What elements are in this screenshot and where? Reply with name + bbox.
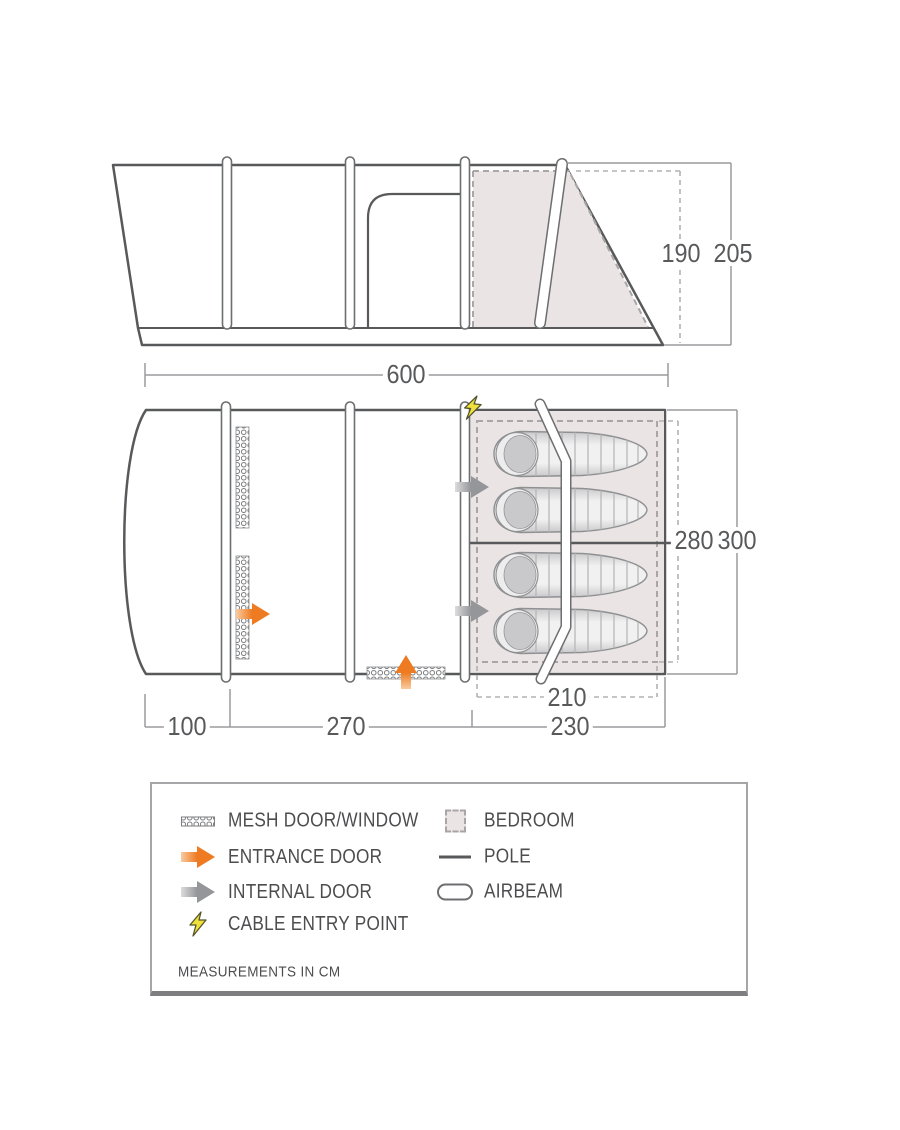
- legend-item-mesh: MESH DOOR/WINDOW: [178, 810, 449, 833]
- airbeam-side-3: [461, 157, 470, 329]
- dim-height-outer: 205: [710, 240, 756, 266]
- dim-length: 600: [383, 361, 429, 387]
- airbeam-icon: [436, 884, 474, 901]
- legend-box: MESH DOOR/WINDOW ENTRANCE DOOR INTERNAL …: [150, 782, 748, 996]
- floor-plan-view: [124, 395, 737, 727]
- legend-item-internal-door: INTERNAL DOOR: [178, 880, 396, 904]
- dim-living: 270: [323, 713, 369, 739]
- dim-bedroom-inner: 210: [544, 684, 590, 710]
- legend-label: AIRBEAM: [484, 881, 563, 904]
- legend-item-cable-entry: CABLE ENTRY POINT: [178, 910, 438, 938]
- dim-porch: 100: [164, 713, 210, 739]
- dim-bedroom-outer: 230: [547, 713, 593, 739]
- pole-icon: [436, 856, 474, 859]
- bedroom-swatch-icon: [436, 810, 474, 833]
- legend-label: INTERNAL DOOR: [228, 881, 372, 904]
- airbeam-plan-3: [461, 402, 470, 682]
- airbeam-plan-2: [346, 402, 355, 682]
- entrance-door-arrow-icon: [178, 845, 218, 869]
- legend-item-pole: POLE: [436, 846, 539, 869]
- cable-entry-point-icon: [178, 910, 218, 938]
- tent-floorplan-diagram: 600 190 205 280 300 210 100 270 230 MESH…: [0, 0, 900, 1130]
- legend-item-bedroom: BEDROOM: [436, 810, 589, 833]
- internal-door-arrow-icon: [178, 880, 218, 904]
- airbeam-plan-1: [222, 402, 231, 682]
- legend-footer: MEASUREMENTS IN CM: [178, 964, 340, 981]
- mesh-door-window-icon: [178, 814, 218, 828]
- airbeam-side-2: [346, 157, 355, 329]
- side-elevation-view: [113, 157, 731, 345]
- legend-item-entrance-door: ENTRANCE DOOR: [178, 845, 407, 869]
- legend-label: ENTRANCE DOOR: [228, 846, 382, 869]
- legend-label: CABLE ENTRY POINT: [228, 913, 409, 936]
- legend-label: MESH DOOR/WINDOW: [228, 810, 418, 833]
- dim-width-outer: 300: [714, 527, 760, 553]
- mesh-window-strip-lower: [236, 556, 249, 659]
- dim-height-inner: 190: [658, 240, 704, 266]
- mesh-window-strip-upper: [236, 427, 249, 528]
- legend-label: POLE: [484, 846, 531, 869]
- legend-label: BEDROOM: [484, 810, 575, 833]
- dim-width-inner: 280: [671, 527, 717, 553]
- airbeam-side-1: [223, 157, 232, 329]
- legend-item-airbeam: AIRBEAM: [436, 881, 576, 904]
